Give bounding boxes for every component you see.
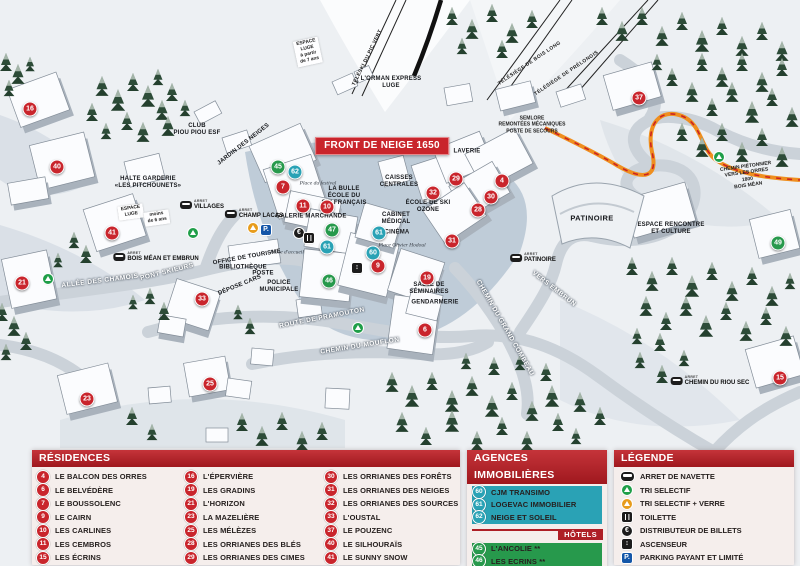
resort-map-page: .bf{fill:#a9b2bc;} .br{fill:#fbfcfe;stro… [0,0,800,566]
map-marker: 41 [105,226,120,241]
residences-panel: RÉSIDENCES 4 LE BALCON DES ORRES 6 LE BE… [32,450,460,565]
residence-number-badge: 41 [324,551,338,565]
residence-name: L'HORIZON [203,500,245,508]
residence-item: 41 LE SUNNY SNOW [324,551,456,565]
legend-icon [622,512,632,522]
hotel-item: 46 LES ECRINS ** [472,555,602,566]
legend-panel: LÉGENDE ARRET DE NAVETTE TRI SELECTIF TR… [614,450,794,565]
residence-item: 31 LES ORRIANES DES NEIGES [324,484,456,498]
residence-name: LE CAIRN [55,514,91,522]
legend-icon [622,553,632,563]
residence-item: 7 LE BOUSSOLENC [36,497,184,511]
residence-item: 16 L'ÉPERVIÈRE [184,470,324,484]
residence-number-badge: 11 [36,537,50,551]
map-marker: 9 [371,259,386,274]
map-label: SALLE DE SÉMINAIRES [409,282,448,296]
agency-name: CJM TRANSIMO [491,489,550,497]
map-marker: 28 [471,203,486,218]
legend-item: PARKING PAYANT ET LIMITÉ [620,551,788,565]
map-label: PATINOIRE [570,214,613,223]
residence-name: LES CEMBROS [55,541,111,549]
map-label: VERS EMBRUN [531,270,578,309]
map-label: GALERIE MARCHANDE [275,213,346,220]
bus-icon [671,377,683,385]
residence-name: LES ÉCRINS [55,554,101,562]
service-icon-glyph [261,225,271,235]
map-service-icon [188,228,198,238]
map-label: LA BULLE ÉCOLE DU SKI FRANÇAIS [321,186,366,208]
residence-name: L'OUSTAL [343,514,380,522]
bus-stop-name: CHEMIN DU RIOU SEC [685,379,750,386]
residence-item: 4 LE BALCON DES ORRES [36,470,184,484]
map-label: POLICE MUNICIPALE [260,280,299,294]
map-label: BIBLIOTHÈQUE [219,264,267,271]
bus-stop-name: CHAMP LACAS [239,212,283,219]
map-label: ESPACE RENCONTRE ET CULTURE [637,222,704,236]
map-marker: 32 [426,186,441,201]
map-label: JARDIN DES NEIGES [217,122,272,167]
hotel-name: LES ECRINS ** [491,558,545,566]
agencies-header: AGENCES IMMOBILIÈRES [467,450,607,484]
map-label: Place d'accueil [270,250,304,257]
service-icon-glyph [353,323,363,333]
map-marker: 37 [632,91,647,106]
map-label: HALTE GARDERIE «LES PITCHOUNETS» [115,176,181,190]
legend-label: DISTRIBUTEUR DE BILLETS [640,527,742,535]
agency-item: 62 NEIGE ET SOLEIL [472,511,602,524]
residence-number-badge: 28 [184,537,198,551]
map-marker: 21 [15,276,30,291]
residence-number-badge: 29 [184,551,198,565]
residence-name: LE BALCON DES ORRES [55,473,147,481]
service-icon-glyph [304,233,314,243]
residence-item: 37 LE POUZENC [324,524,456,538]
map-service-icon [714,152,724,162]
residence-name: LES ORRIANES DES CIMES [203,554,305,562]
residence-number-badge: 30 [324,470,338,484]
agency-item: 61 LOGEVAC IMMOBILIER [472,499,602,512]
map-label: CLUB PIOU PIOU ESF [174,123,221,137]
residence-item: 23 LA MAZELIÈRE [184,511,324,525]
map-marker: 40 [50,160,65,175]
map-service-icon [353,323,363,333]
map-label: TÉLÉSIÈGE DE BOIS LONG [498,41,563,87]
bus-icon [225,210,237,218]
map-marker: 10 [320,200,335,215]
map-label: ESPACE LUGE à partir de 7 ans [293,37,323,68]
residence-number-badge: 25 [184,524,198,538]
residence-item: 29 LES ORRIANES DES CIMES [184,551,324,565]
residence-name: L'ÉPERVIÈRE [203,473,253,481]
bus-stop-label: ARRET VILLAGES [180,200,224,210]
map-label: OFFICE DE TOURISME [212,248,281,267]
bus-stop-name: VILLAGES [194,203,224,210]
map-label: CAISSES CENTRALES [380,175,418,189]
map-service-icon [352,263,362,273]
map-label: CINÉMA [385,229,410,236]
map-marker: 31 [445,234,460,249]
bus-stop-name: BOIS MÉAN ET EMBRUN [127,255,198,262]
residence-name: LA MAZELIÈRE [203,514,259,522]
residence-number-badge: 16 [184,470,198,484]
residence-name: LES MÉLÈZES [203,527,256,535]
residence-number-badge: 40 [324,537,338,551]
bus-icon [180,201,192,209]
legend-label: ARRET DE NAVETTE [640,473,715,481]
legend-icon [621,472,634,481]
map-marker: 30 [484,190,499,205]
residences-header: RÉSIDENCES [32,450,460,467]
residence-number-badge: 19 [184,483,198,497]
map-service-icon [43,274,53,284]
residence-name: LES GRADINS [203,487,255,495]
map-label: POSTE [252,270,273,277]
residence-name: LES ORRIANES DES NEIGES [343,487,450,495]
residence-number-badge: 37 [324,524,338,538]
map-label: Place du festival [300,181,337,188]
residence-item: 9 LE CAIRN [36,511,184,525]
legend-item: ARRET DE NAVETTE [620,470,788,484]
map-service-icon [261,225,271,235]
residence-name: LES ORRIANES DES BLÉS [203,541,301,549]
residence-item: 15 LES ÉCRINS [36,551,184,565]
service-icon-glyph [188,228,198,238]
legend-item: TRI SELECTIF [620,484,788,498]
residence-number-badge: 6 [36,483,50,497]
bus-stop-word: ARRET [239,209,283,213]
residence-item: 28 LES ORRIANES DES BLÉS [184,538,324,552]
map-label: ÉCOLE DE SKI OZONE [406,200,451,214]
map-marker: 29 [449,172,464,187]
map-marker: 23 [80,392,95,407]
residence-item: 19 LES GRADINS [184,484,324,498]
agency-name: LOGEVAC IMMOBILIER [491,501,576,509]
legend-label: ASCENSEUR [640,541,687,549]
map-label: CHEMIN DU GRAND COMBEAU [475,279,536,377]
map-label: LAVERIE [454,148,481,155]
map-label: ALLÉE DES CHAMOIS [61,273,139,290]
legend-label: TRI SELECTIF + VERRE [640,500,725,508]
residence-number-badge: 15 [36,551,50,565]
map-marker: 46 [322,274,337,289]
map-label: SEMLORE REMONTÉES MÉCANIQUES POSTE DE SE… [499,116,566,135]
legend-icon [622,539,632,549]
residence-number-badge: 7 [36,497,50,511]
service-icon-glyph [43,274,53,284]
map-label: FRONT DE NEIGE 1650 [315,137,449,155]
legend-strip: RÉSIDENCES 4 LE BALCON DES ORRES 6 LE BE… [0,448,800,566]
legend-item: TOILETTE [620,511,788,525]
legend-icon [622,499,632,509]
map-label: PONT SKIEURS [140,262,195,282]
map-label: CABINET MÉDICAL [382,212,411,226]
map-marker: 47 [325,223,340,238]
map-marker: 45 [271,160,286,175]
map-marker: 62 [288,165,303,180]
map-marker: 7 [276,180,291,195]
legend-label: PARKING PAYANT ET LIMITÉ [640,554,743,562]
residence-name: LE POUZENC [343,527,392,535]
residence-number-badge: 23 [184,510,198,524]
map-marker: 49 [771,236,786,251]
map-label: TÉLÉSIÈGE DE PRÉLONGIS [534,50,600,97]
map-marker: 11 [296,199,311,214]
residence-name: LES ORRIANES DES FORÊTS [343,473,452,481]
residence-item: 10 LES CARLINES [36,524,184,538]
hotels-title: HÔTELS [558,529,603,540]
residence-item: 11 LES CEMBROS [36,538,184,552]
residence-name: LE SUNNY SNOW [343,554,408,562]
residence-name: LES ORRIANES DES SOURCES [343,500,458,508]
residence-item: 21 L'HORIZON [184,497,324,511]
residence-item: 40 LE SILHOURAÏS [324,538,456,552]
bus-stop-label: ARRET CHEMIN DU RIOU SEC [671,376,750,386]
service-icon-glyph [248,223,258,233]
bus-stop-word: ARRET [524,253,556,257]
map-label: Place Olivier Hodoul [378,243,425,250]
residence-name: LES CARLINES [55,527,111,535]
hotel-name: L'ANCOLIE ** [491,545,540,553]
map-label: GENDARMERIE [411,299,458,306]
map-label: moins de 6 ans [144,209,171,226]
bus-icon [113,253,125,261]
residence-name: LE BOUSSOLENC [55,500,121,508]
hotel-item: 45 L'ANCOLIE ** [472,543,602,556]
residence-number-badge: 21 [184,497,198,511]
hotels-header: HÔTELS [472,529,602,540]
agency-number-badge: 62 [472,510,486,524]
map-label: L'ORMAN EXPRESS LUGE [361,76,422,90]
map-marker: 61 [320,240,335,255]
legend-label: TRI SELECTIF [640,487,690,495]
legend-item: TRI SELECTIF + VERRE [620,497,788,511]
legend-item: ASCENSEUR [620,538,788,552]
map-label: ESPACE LUGE [117,203,144,220]
map-marker: 60 [366,246,381,261]
map-service-icon [304,233,314,243]
map-marker: 15 [773,371,788,386]
residence-number-badge: 33 [324,510,338,524]
bus-stop-word: ARRET [127,252,198,256]
map-service-icon [248,223,258,233]
bus-stop-name: PATINOIRE [524,256,556,263]
bus-stop-label: ARRET CHAMP LACAS [225,209,283,219]
residence-number-badge: 4 [36,470,50,484]
map-label: DÉPOSE CARS [217,274,262,298]
residence-item: 6 LE BELVÉDÈRE [36,484,184,498]
bus-stop-label: ARRET PATINOIRE [510,253,556,263]
legend-icon [622,485,632,495]
residence-number-badge: 10 [36,524,50,538]
hotel-number-badge: 46 [472,554,486,566]
residence-name: LE SILHOURAÏS [343,541,402,549]
map-label: CHEMIN DU MOUFLON [320,336,400,356]
residence-item: 33 L'OUSTAL [324,511,456,525]
service-icon-glyph [352,263,362,273]
map-marker: 16 [23,102,38,117]
map-service-icon [294,228,304,238]
legend-label: TOILETTE [640,514,676,522]
map-marker: 19 [420,271,435,286]
bus-stop-word: ARRET [685,376,750,380]
legend-icon [622,526,632,536]
bus-icon [510,254,522,262]
agencies-hotels-panel: AGENCES IMMOBILIÈRES 60 CJM TRANSIMO 61 … [467,450,607,566]
bus-stop-word: ARRET [194,200,224,204]
residence-name: LE BELVÉDÈRE [55,487,113,495]
map-marker: 4 [495,174,510,189]
service-icon-glyph [714,152,724,162]
service-icon-glyph [294,228,304,238]
agency-item: 60 CJM TRANSIMO [472,486,602,499]
residence-item: 32 LES ORRIANES DES SOURCES [324,497,456,511]
residence-item: 25 LES MÉLÈZES [184,524,324,538]
residence-number-badge: 31 [324,483,338,497]
map-marker: 61 [372,226,387,241]
residence-number-badge: 9 [36,510,50,524]
map-marker: 6 [418,323,433,338]
residence-number-badge: 32 [324,497,338,511]
map-marker: 33 [195,292,210,307]
legend-item: DISTRIBUTEUR DE BILLETS [620,524,788,538]
agency-name: NEIGE ET SOLEIL [491,514,557,522]
map-label: ROUTE DE PRAMOUTON [279,306,366,330]
residence-item: 30 LES ORRIANES DES FORÊTS [324,470,456,484]
map-label: CHEMIN PIÉTONNIER VERS LES ORRES 1800 BO… [719,160,775,192]
map-marker: 25 [203,377,218,392]
bus-stop-label: ARRET BOIS MÉAN ET EMBRUN [113,252,198,262]
map-label: TÉLÉSKI DU PIC VERT [352,29,384,87]
legend-header: LÉGENDE [614,450,794,467]
